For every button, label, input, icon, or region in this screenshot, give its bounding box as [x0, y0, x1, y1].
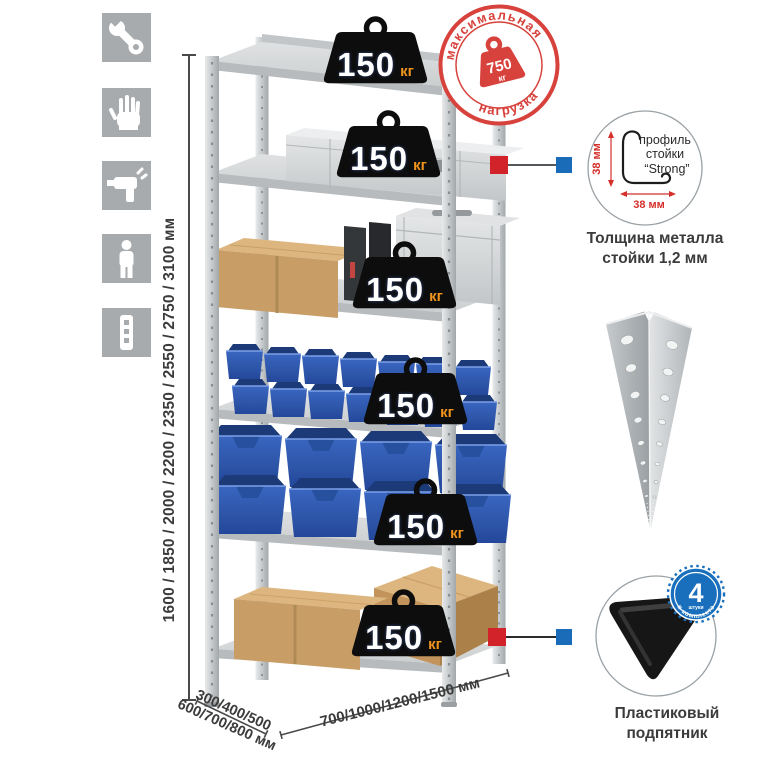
quantity-badge: 4 штуки в комплекте — [665, 563, 727, 625]
badge-unit: кг — [429, 289, 443, 304]
profile-strip-icon — [102, 308, 151, 357]
profile-caption-line1: Толщина металла — [570, 229, 740, 249]
badge-unit: кг — [450, 526, 464, 541]
quantity-badge-small-label: штуки — [688, 605, 703, 611]
profile-label-2: стойки — [646, 147, 684, 161]
shelf-load-badge-5: 150кг — [353, 477, 498, 553]
shelf-load-badge-3: 150кг — [332, 240, 477, 316]
gloves-icon — [102, 88, 151, 137]
callout-line-foot — [506, 636, 556, 638]
height-dimension-line — [188, 55, 190, 700]
person-icon — [102, 234, 151, 283]
badge-value: 150 — [350, 142, 408, 175]
badge-unit: кг — [413, 158, 427, 173]
badge-unit: кг — [428, 637, 442, 652]
badge-value: 150 — [387, 510, 445, 543]
height-dimension-cap-top — [182, 54, 196, 56]
shelf-load-badge-4: 150кг — [343, 356, 488, 432]
drill-icon — [102, 161, 151, 210]
post-profile-callout: 38 мм 38 мм профиль стойки “Strong” — [583, 106, 713, 236]
quantity-badge-value: 4 — [688, 578, 703, 608]
profile-label-1: профиль — [639, 133, 691, 147]
callout-line-profile — [508, 164, 557, 166]
badge-value: 150 — [337, 48, 395, 81]
height-dimension-label: 1600 / 1850 / 2000 / 2200 / 2350 / 2550 … — [161, 140, 179, 700]
profile-dim-vertical-label: 38 мм — [591, 143, 603, 175]
badge-value: 150 — [365, 621, 423, 654]
product-infographic: 1600 / 1850 / 2000 / 2200 / 2350 / 2550 … — [0, 0, 765, 765]
max-load-stamp: максимальная нагрузка 750 кг — [437, 3, 561, 127]
foot-caption-line2: подпятник — [582, 724, 752, 744]
shelf-load-badge-6: 150кг — [331, 588, 476, 664]
callout-marker-blue-foot — [556, 629, 572, 645]
foot-caption: Пластиковый подпятник — [582, 704, 752, 744]
angle-post-image — [588, 298, 718, 538]
callout-marker-blue-profile — [556, 157, 572, 173]
profile-dim-horizontal-label: 38 мм — [633, 199, 665, 211]
badge-value: 150 — [377, 389, 435, 422]
callout-marker-red-profile — [490, 156, 508, 174]
foot-caption-line1: Пластиковый — [582, 704, 752, 724]
shelf-load-badge-1: 150кг — [303, 15, 448, 91]
wrench-icon — [102, 13, 151, 62]
profile-caption-line2: стойки 1,2 мм — [570, 249, 740, 269]
callout-marker-red-foot — [488, 628, 506, 646]
profile-caption: Толщина металла стойки 1,2 мм — [570, 229, 740, 269]
badge-unit: кг — [440, 405, 454, 420]
profile-label-3: “Strong” — [644, 162, 689, 176]
badge-unit: кг — [400, 64, 414, 79]
badge-value: 150 — [366, 273, 424, 306]
